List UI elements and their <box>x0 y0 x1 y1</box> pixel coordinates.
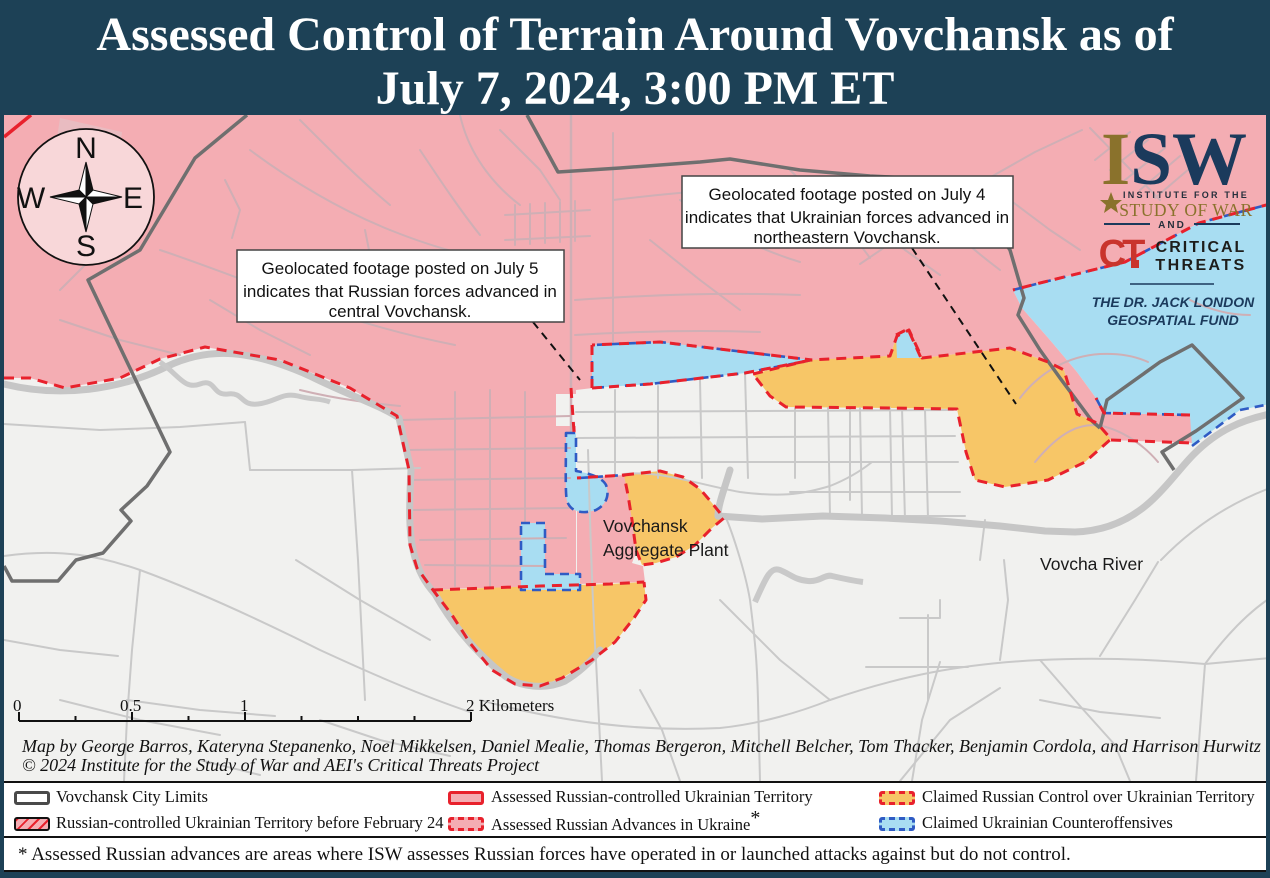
svg-text:Vovcha River: Vovcha River <box>1040 554 1143 574</box>
svg-text:0.5: 0.5 <box>120 696 141 715</box>
svg-text:THE DR. JACK LONDON: THE DR. JACK LONDON <box>1092 294 1255 310</box>
svg-text:Geolocated footage posted on J: Geolocated footage posted on July 4 <box>709 185 986 204</box>
svg-text:E: E <box>123 182 143 215</box>
svg-text:Aggregate Plant: Aggregate Plant <box>603 540 729 560</box>
svg-text:GEOSPATIAL FUND: GEOSPATIAL FUND <box>1107 312 1238 328</box>
svg-text:Geolocated footage posted on J: Geolocated footage posted on July 5 <box>262 259 539 278</box>
svg-text:INSTITUTE FOR THE: INSTITUTE FOR THE <box>1123 190 1249 200</box>
svg-text:indicates that Ukrainian force: indicates that Ukrainian forces advanced… <box>685 208 1009 227</box>
svg-text:2 Kilometers: 2 Kilometers <box>466 696 554 715</box>
svg-text:0: 0 <box>13 696 22 715</box>
svg-text:AND: AND <box>1158 220 1186 231</box>
svg-text:central Vovchansk.: central Vovchansk. <box>329 302 472 321</box>
svg-text:indicates that Russian forces: indicates that Russian forces advanced i… <box>243 282 557 301</box>
svg-text:northeastern Vovchansk.: northeastern Vovchansk. <box>753 228 940 247</box>
svg-text:CRITICAL: CRITICAL <box>1156 239 1247 256</box>
svg-text:Vovchansk: Vovchansk <box>603 516 688 536</box>
svg-text:N: N <box>75 132 97 165</box>
svg-text:THREATS: THREATS <box>1155 257 1246 274</box>
svg-text:ISW: ISW <box>1101 118 1247 201</box>
svg-text:W: W <box>17 182 46 215</box>
svg-text:S: S <box>76 230 96 263</box>
svg-text:1: 1 <box>240 696 249 715</box>
svg-text:CT: CT <box>1099 233 1145 275</box>
svg-text:STUDY OF WAR: STUDY OF WAR <box>1119 200 1252 220</box>
